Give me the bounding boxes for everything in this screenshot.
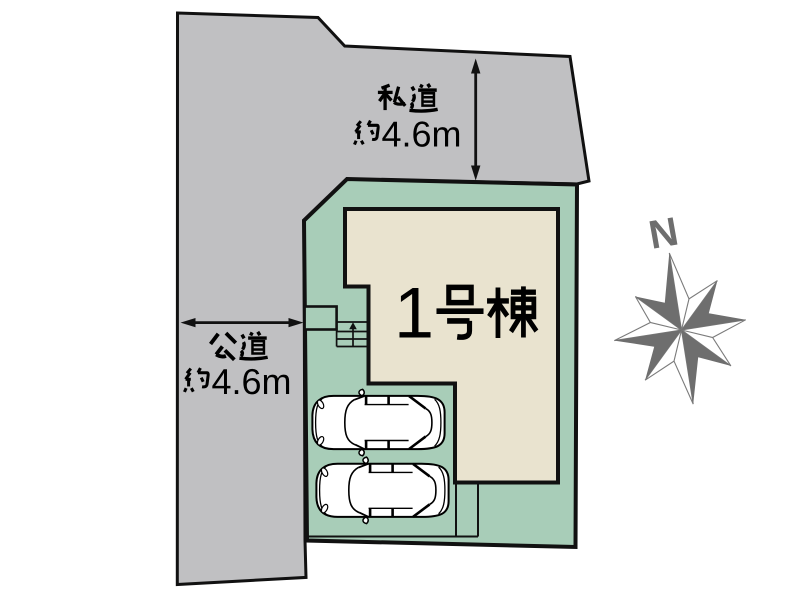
svg-text:4.6m: 4.6m — [212, 361, 292, 402]
svg-text:4.6m: 4.6m — [382, 114, 462, 155]
svg-text:1: 1 — [394, 274, 434, 354]
